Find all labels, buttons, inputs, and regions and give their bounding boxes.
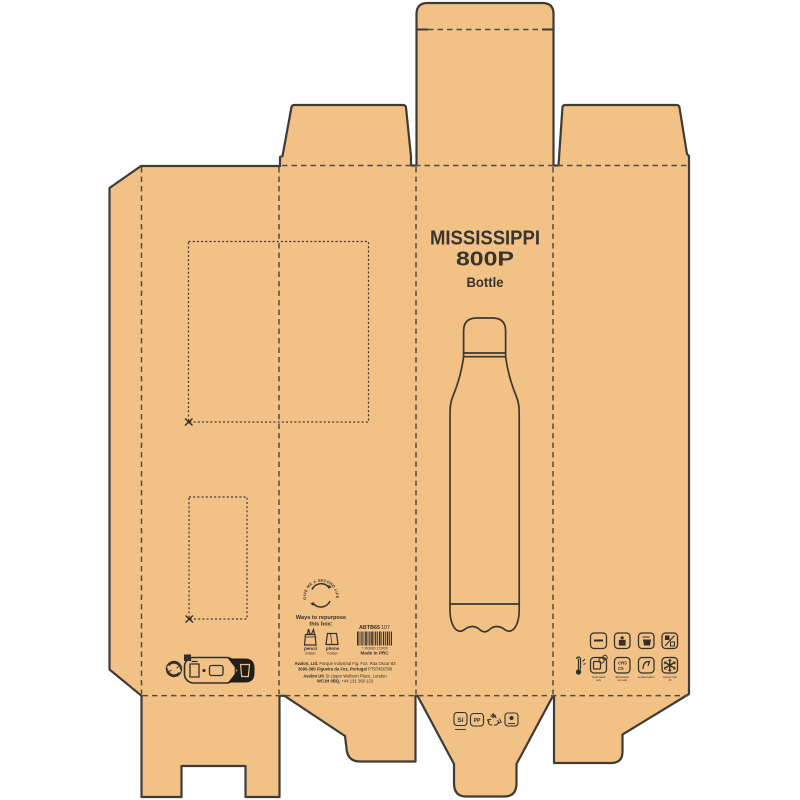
svg-text:pencil: pencil: [304, 646, 317, 651]
svg-text:only: only: [596, 678, 602, 682]
svg-text:PP: PP: [474, 718, 481, 724]
svg-text:ABTB65: ABTB65: [359, 625, 380, 631]
svg-text:phone: phone: [326, 646, 340, 651]
svg-text:condensation: condensation: [638, 675, 655, 679]
svg-text:MISSISSIPPI: MISSISSIPPI: [430, 227, 540, 250]
svg-text:C5: C5: [618, 666, 624, 671]
svg-text:Ways to repurpose: Ways to repurpose: [296, 615, 346, 621]
svg-text:not safe: not safe: [617, 678, 627, 682]
svg-text:Made in PRC: Made in PRC: [360, 651, 389, 656]
svg-text:Avalon, Ltd. Parque Industrial: Avalon, Ltd. Parque Industrial Fig. Foz,…: [294, 661, 396, 666]
svg-text:3090-380 Figueira da Foz, Port: 3090-380 Figueira da Foz, Portugal PT974…: [298, 667, 393, 672]
svg-text:Si: Si: [457, 717, 463, 724]
svg-text:800P: 800P: [456, 248, 514, 271]
svg-text:CR5: CR5: [618, 661, 627, 666]
svg-text:this box:: this box:: [309, 622, 332, 628]
svg-text:107: 107: [381, 625, 390, 631]
svg-text:holder: holder: [305, 652, 316, 656]
svg-text:holder: holder: [327, 652, 338, 656]
svg-text:Bottle: Bottle: [467, 275, 504, 290]
svg-text:WC1H 0BQ, +44 131 268 123: WC1H 0BQ, +44 131 268 123: [317, 679, 374, 684]
svg-text:4h: 4h: [668, 678, 672, 682]
